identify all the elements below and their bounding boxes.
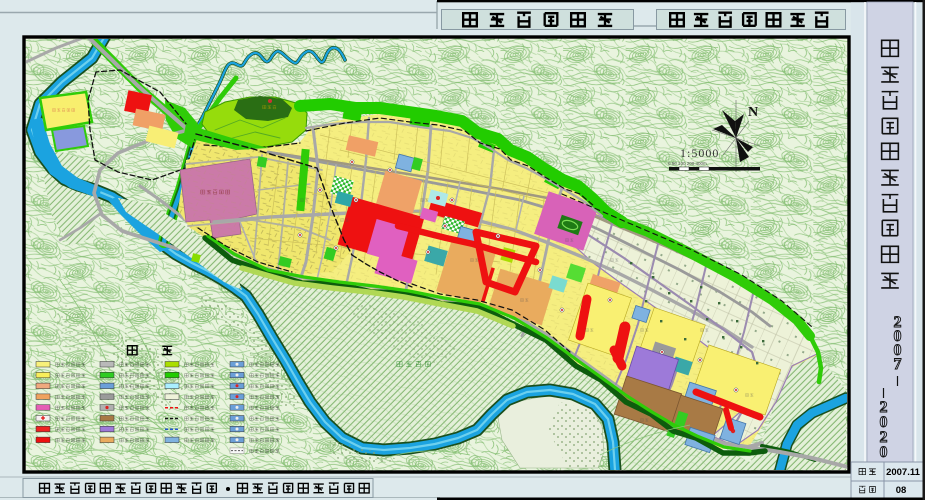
svg-text:08: 08: [896, 485, 907, 496]
svg-text:N: N: [748, 105, 758, 120]
svg-text:7: 7: [894, 356, 902, 373]
svg-text:1:5000: 1:5000: [680, 146, 719, 160]
svg-text:0: 0: [880, 444, 888, 461]
svg-text:0 50 100 200 400m: 0 50 100 200 400m: [668, 161, 707, 166]
svg-text:2007.11: 2007.11: [886, 467, 921, 478]
